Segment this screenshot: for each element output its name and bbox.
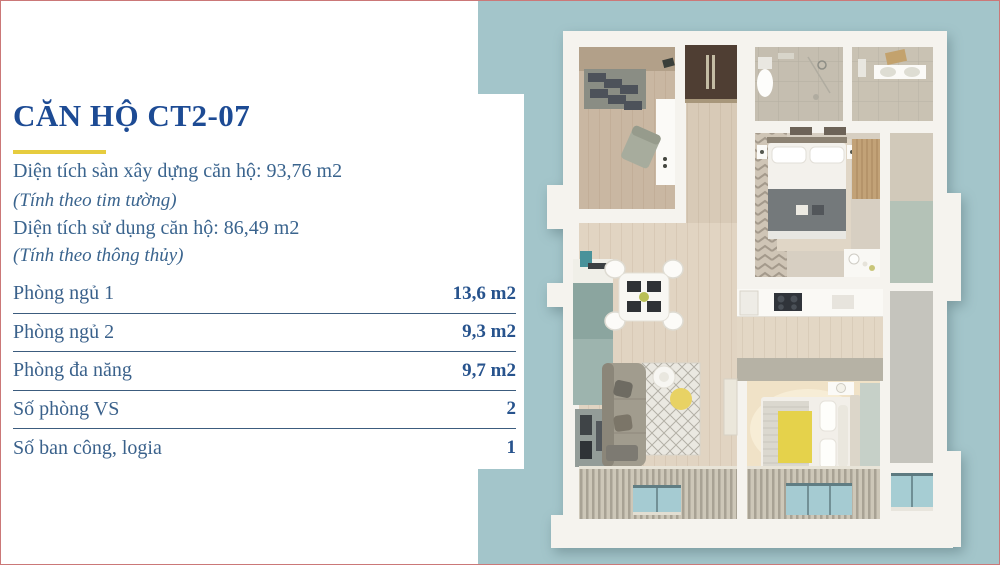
entry-hall xyxy=(685,45,737,223)
bedroom-1 xyxy=(755,127,880,277)
apartment-info-card: CĂN HỘ CT2-07 Diện tích sàn xây dựng căn… xyxy=(0,0,1000,565)
row-value: 2 xyxy=(507,398,517,420)
row-label: Phòng đa năng xyxy=(13,359,132,382)
table-row: Số ban công, logia 1 xyxy=(13,429,516,468)
bedroom-door xyxy=(724,379,737,435)
table-row: Phòng đa năng 9,7 m2 xyxy=(13,352,516,391)
wardrobe xyxy=(852,139,880,199)
bed-2 xyxy=(761,395,860,477)
floorplan-image xyxy=(478,1,1000,565)
row-label: Số phòng VS xyxy=(13,398,119,421)
balcony-loggia xyxy=(579,466,880,519)
entrance-door xyxy=(685,45,737,99)
table-row: Phòng ngủ 2 9,3 m2 xyxy=(13,314,516,353)
row-value: 1 xyxy=(507,437,517,459)
bathroom-2 xyxy=(852,47,933,121)
row-value: 9,7 m2 xyxy=(462,360,516,382)
built-area-text: Diện tích sàn xây dựng căn hộ: 93,76 m2 xyxy=(13,160,342,183)
page-title: CĂN HỘ CT2-07 xyxy=(13,98,250,134)
toilet xyxy=(757,69,773,97)
built-area-note: (Tính theo tim tường) xyxy=(13,190,177,212)
room-spec-table: Phòng ngủ 1 13,6 m2 Phòng ngủ 2 9,3 m2 P… xyxy=(13,275,516,468)
multi-purpose-room xyxy=(890,133,933,511)
kitchen xyxy=(579,47,675,209)
row-label: Phòng ngủ 2 xyxy=(13,321,114,344)
usable-area-text: Diện tích sử dụng căn hộ: 86,49 m2 xyxy=(13,217,299,240)
usable-area-note: (Tính theo thông thủy) xyxy=(13,245,183,267)
row-label: Số ban công, logia xyxy=(13,437,162,460)
bed-1 xyxy=(767,137,847,239)
bathroom-1 xyxy=(755,47,843,121)
title-underline xyxy=(13,150,106,154)
floorplan-panel xyxy=(478,1,1000,565)
bedroom-2 xyxy=(724,358,883,481)
sofa xyxy=(602,363,646,467)
apartment-3d-model xyxy=(547,31,961,548)
row-value: 13,6 m2 xyxy=(453,283,516,305)
balcony-glass-2 xyxy=(786,483,852,515)
vanity-desk xyxy=(844,249,880,277)
row-value: 9,3 m2 xyxy=(462,321,516,343)
table-row: Số phòng VS 2 xyxy=(13,391,516,430)
info-panel: CĂN HỘ CT2-07 Diện tích sàn xây dựng căn… xyxy=(1,94,524,469)
yellow-pouf xyxy=(670,388,692,410)
row-label: Phòng ngủ 1 xyxy=(13,282,114,305)
table-row: Phòng ngủ 1 13,6 m2 xyxy=(13,275,516,314)
